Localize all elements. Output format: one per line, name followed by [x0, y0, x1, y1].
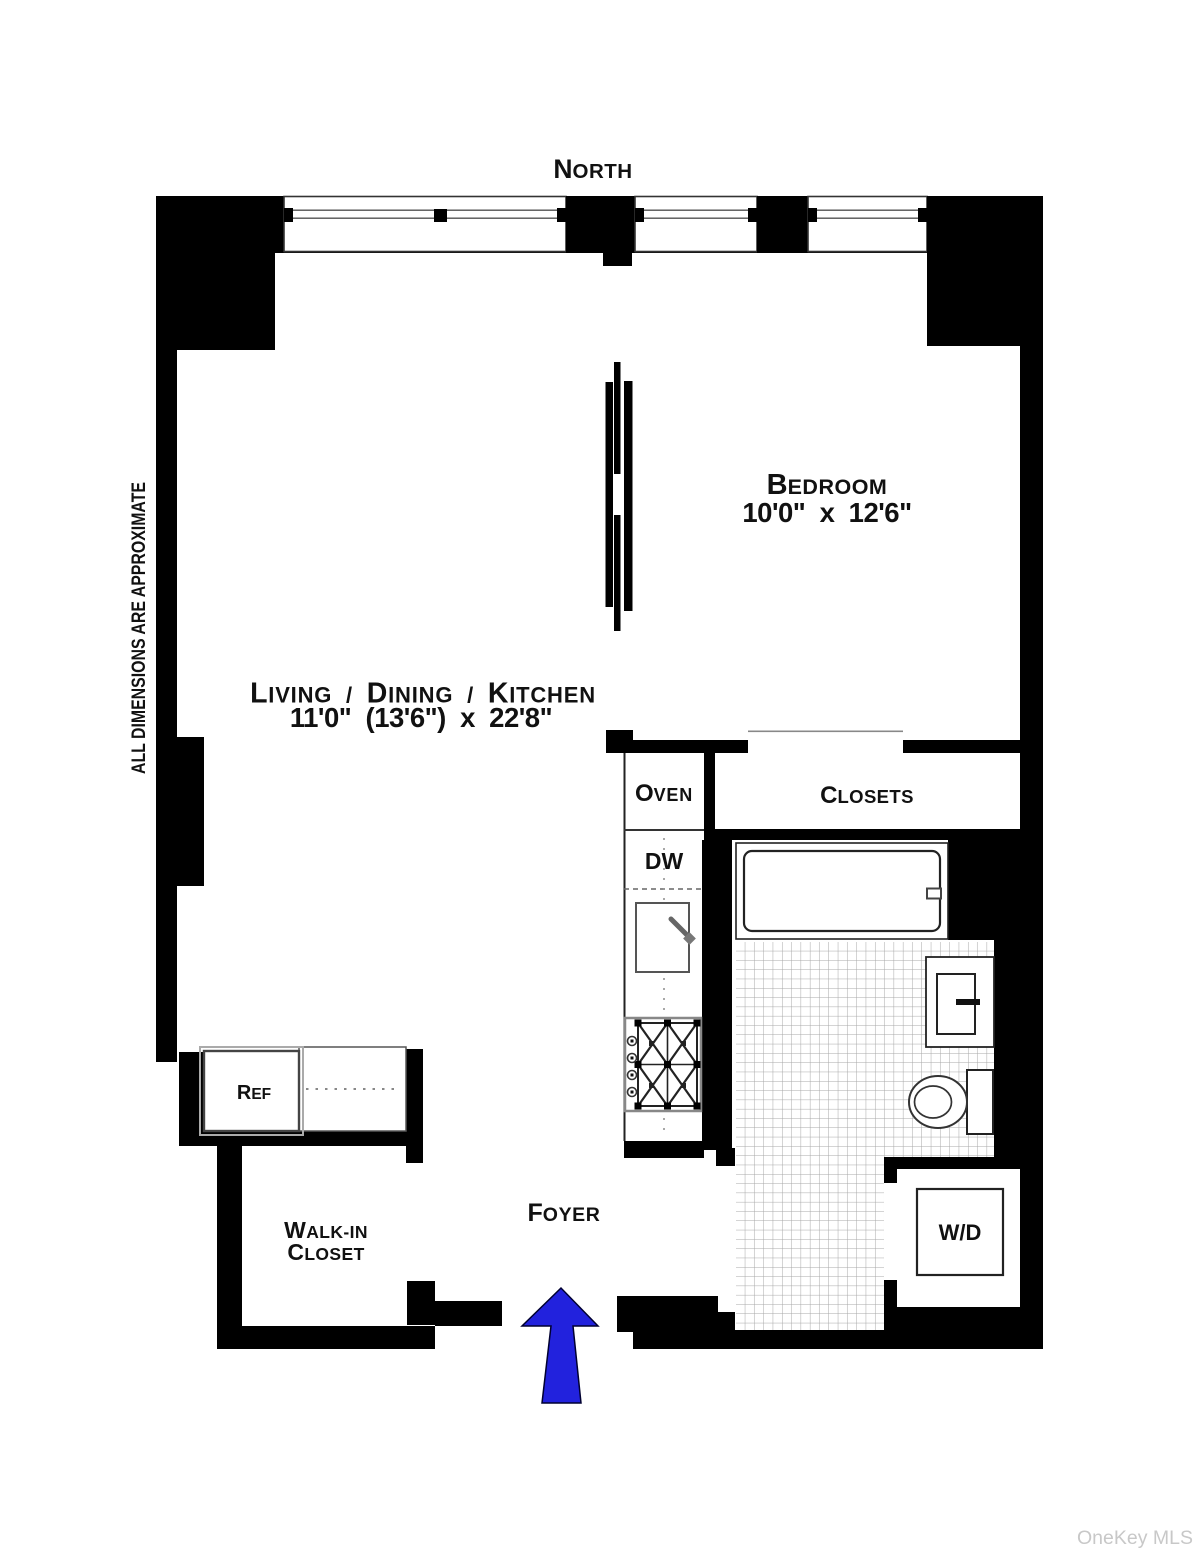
- svg-text:OneKey MLS: OneKey MLS: [1077, 1527, 1193, 1549]
- svg-text:CLOSETS: CLOSETS: [820, 782, 914, 809]
- svg-text:FOYER: FOYER: [528, 1199, 601, 1227]
- svg-text:ALL DIMENSIONS ARE APPROXIMATE: ALL DIMENSIONS ARE APPROXIMATE: [128, 482, 150, 774]
- svg-text:REF: REF: [237, 1082, 271, 1104]
- svg-text:OVEN: OVEN: [635, 780, 693, 807]
- svg-text:DW: DW: [645, 848, 684, 874]
- svg-text:W/D: W/D: [939, 1220, 982, 1245]
- svg-text:11'0" (13'6") x 22'8": 11'0" (13'6") x 22'8": [290, 702, 552, 733]
- svg-text:10'0" x 12'6": 10'0" x 12'6": [742, 497, 911, 528]
